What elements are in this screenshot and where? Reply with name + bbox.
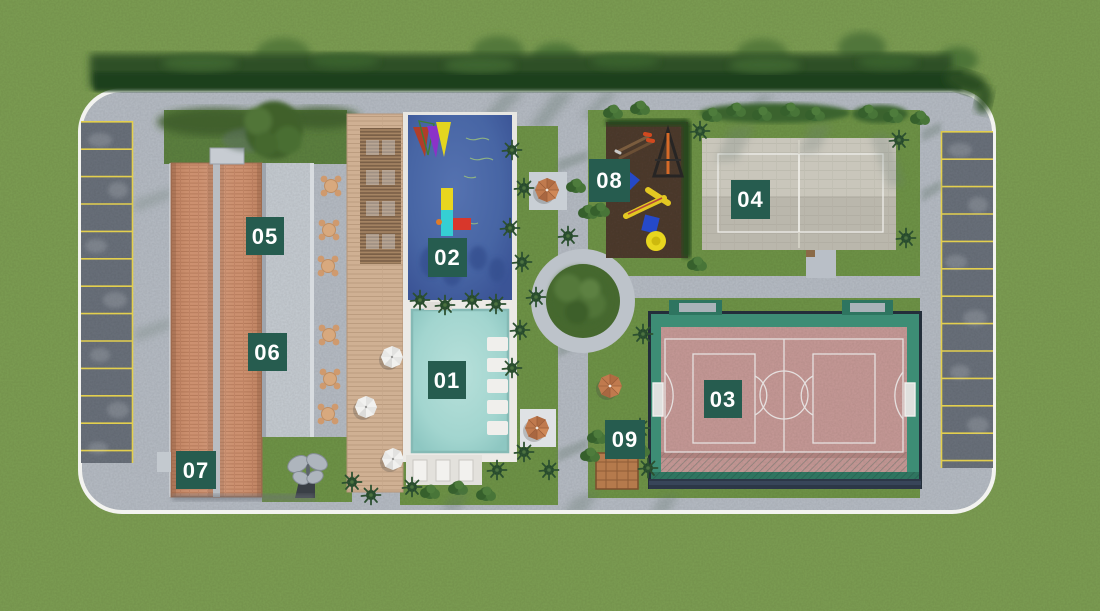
svg-text:04: 04 xyxy=(737,187,763,212)
svg-text:05: 05 xyxy=(252,224,278,249)
svg-text:06: 06 xyxy=(254,340,280,365)
svg-text:07: 07 xyxy=(183,458,209,483)
svg-text:03: 03 xyxy=(710,387,736,412)
svg-text:01: 01 xyxy=(434,368,460,393)
svg-text:02: 02 xyxy=(434,245,460,270)
svg-text:08: 08 xyxy=(596,168,622,193)
svg-text:09: 09 xyxy=(612,427,638,452)
